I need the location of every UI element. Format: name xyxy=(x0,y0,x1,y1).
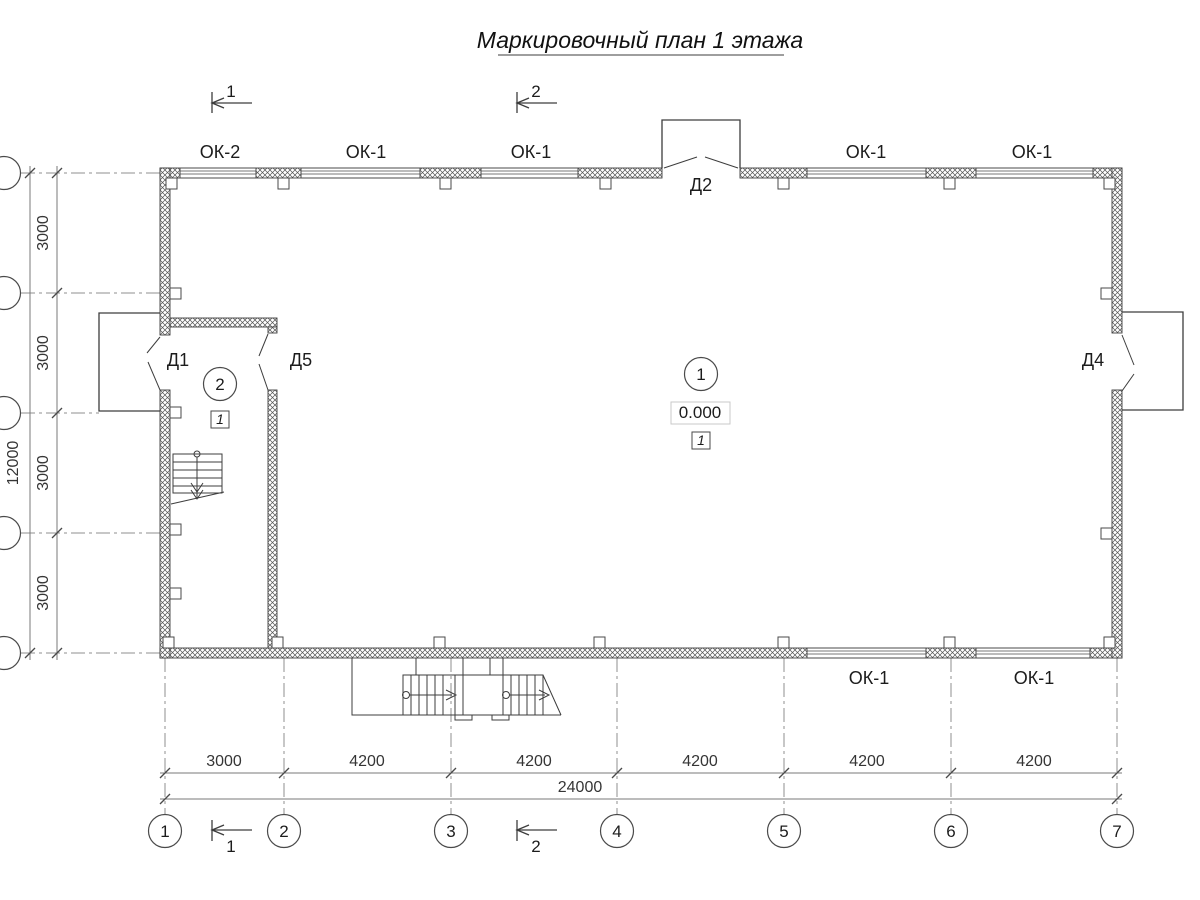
room-marker-main: 1 0.000 1 xyxy=(671,358,730,450)
dim-3000: 3000 xyxy=(35,335,52,371)
porch-d4 xyxy=(1122,312,1183,410)
axis-col-3: 3 xyxy=(446,822,455,841)
door-labels: Д1 Д2 Д4 Д5 xyxy=(167,175,1104,370)
page-title: Маркировочный план 1 этажа xyxy=(477,27,803,53)
window-ok1-top-3 xyxy=(807,168,926,178)
door-d1 xyxy=(99,313,160,411)
dim-4200: 4200 xyxy=(1016,753,1052,770)
dim-4200: 4200 xyxy=(516,753,552,770)
axis-col-6: 6 xyxy=(946,822,955,841)
door-d5 xyxy=(259,334,268,390)
window-label-ok1: ОК-1 xyxy=(1012,142,1053,162)
axis-col-1: 1 xyxy=(160,822,169,841)
dimension-chain-bottom: 3000 4200 4200 4200 4200 4200 24000 xyxy=(160,753,1122,804)
room-number: 1 xyxy=(696,365,705,384)
svg-text:2: 2 xyxy=(531,837,540,856)
window-label-ok2: ОК-2 xyxy=(200,142,241,162)
dim-total-12000: 12000 xyxy=(5,441,22,486)
finish-number: 1 xyxy=(216,411,224,427)
room-marker-stair-lobby: 2 1 xyxy=(204,368,237,429)
column-axis-bubbles: 1 2 3 4 5 6 7 xyxy=(149,815,1134,848)
section-marks: 1 2 1 2 xyxy=(212,82,557,856)
axis-col-7: 7 xyxy=(1112,822,1121,841)
floor-plan-sheet: Маркировочный план 1 этажа xyxy=(0,0,1200,900)
drawing-title: Маркировочный план 1 этажа xyxy=(477,27,803,55)
door-label-d1: Д1 xyxy=(167,350,189,370)
window-ok1-top-4 xyxy=(976,168,1093,178)
door-label-d5: Д5 xyxy=(290,350,312,370)
window-label-ok1: ОК-1 xyxy=(849,668,890,688)
floor-plan-drawing: Маркировочный план 1 этажа xyxy=(0,0,1200,900)
room-number: 2 xyxy=(215,375,224,394)
section-mark-1-bottom: 1 xyxy=(212,820,252,856)
window-ok1-top-1 xyxy=(301,168,420,178)
dim-3000: 3000 xyxy=(206,753,242,770)
door-d2 xyxy=(662,120,740,168)
window-label-ok1: ОК-1 xyxy=(1014,668,1055,688)
door-d4 xyxy=(1122,312,1183,410)
dim-3000: 3000 xyxy=(35,455,52,491)
axis-col-4: 4 xyxy=(612,822,621,841)
finish-number: 1 xyxy=(697,432,705,448)
section-mark-2-bottom: 2 xyxy=(517,820,557,856)
dim-4200: 4200 xyxy=(849,753,885,770)
window-ok1-bottom-1 xyxy=(807,648,926,658)
section-mark-2-top: 2 xyxy=(517,82,557,113)
svg-text:1: 1 xyxy=(226,837,235,856)
svg-text:1: 1 xyxy=(226,82,235,101)
window-ok1-top-2 xyxy=(481,168,578,178)
porch-d2 xyxy=(662,120,740,168)
window-label-ok1: ОК-1 xyxy=(511,142,552,162)
window-ok2-top xyxy=(180,168,256,178)
svg-text:2: 2 xyxy=(531,82,540,101)
dim-3000: 3000 xyxy=(35,215,52,251)
porch-d1 xyxy=(99,313,160,411)
window-label-ok1: ОК-1 xyxy=(846,142,887,162)
dim-4200: 4200 xyxy=(682,753,718,770)
elevation-value: 0.000 xyxy=(679,403,722,422)
dim-4200: 4200 xyxy=(349,753,385,770)
axis-col-5: 5 xyxy=(779,822,788,841)
door-label-d2: Д2 xyxy=(690,175,712,195)
interior-staircase xyxy=(171,451,224,504)
window-label-ok1: ОК-1 xyxy=(346,142,387,162)
section-mark-1-top: 1 xyxy=(212,82,252,113)
dim-total-24000: 24000 xyxy=(558,779,603,796)
window-labels: ОК-2 ОК-1 ОК-1 ОК-1 ОК-1 ОК-1 ОК-1 xyxy=(200,142,1055,688)
dim-3000: 3000 xyxy=(35,575,52,611)
exterior-walls xyxy=(160,168,1122,658)
row-axis-bubbles-clipped xyxy=(0,157,21,670)
wall-pilasters xyxy=(163,178,1115,648)
window-ok1-bottom-2 xyxy=(976,648,1090,658)
axis-col-2: 2 xyxy=(279,822,288,841)
door-label-d4: Д4 xyxy=(1082,350,1104,370)
exterior-entrance-stairs xyxy=(352,658,561,720)
